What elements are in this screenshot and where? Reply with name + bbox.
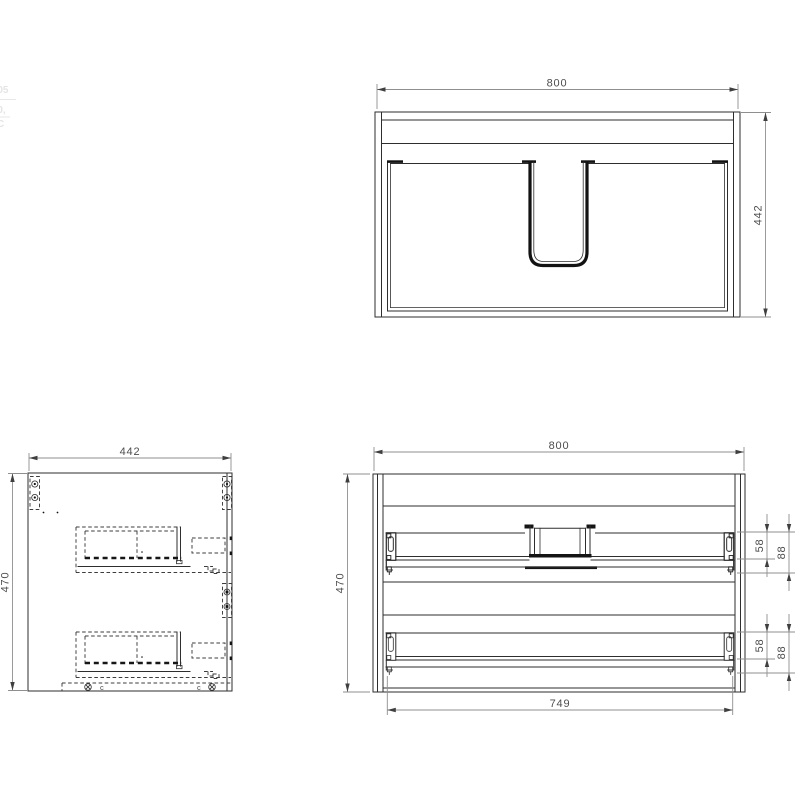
drawer1-offset-a-label: 58 <box>754 539 766 553</box>
edge-artifacts: -05 -0, C <box>0 85 16 130</box>
edge-artifact-text: C <box>0 119 4 130</box>
drawer2-offset-a-label: 58 <box>754 639 766 653</box>
front-view-carcass <box>373 474 745 692</box>
front-view-dim-height: 470 <box>335 474 371 692</box>
drawer2-hardware <box>386 633 734 675</box>
side-view-drawer-box <box>76 527 232 574</box>
basin-siphon-cutout <box>530 162 587 266</box>
hanger-bracket-top-left <box>30 477 40 510</box>
drill-mark <box>43 512 45 514</box>
top-view-width-label: 800 <box>547 78 568 90</box>
top-view-dim-width: 800 <box>377 78 738 110</box>
front-view-dim-runner: 749 <box>387 676 732 715</box>
side-view-marker-right: c <box>197 683 201 692</box>
runner-length-label: 749 <box>550 698 571 710</box>
side-view-drawer-box-lower <box>76 632 232 679</box>
top-view-drawer-box <box>387 161 728 311</box>
front-view-height-label: 470 <box>335 573 347 594</box>
side-view-dim-depth: 442 <box>29 446 231 471</box>
screw-cross-icon <box>85 684 92 691</box>
front-view-width-label: 800 <box>549 440 570 452</box>
side-view: 442 470 <box>0 446 232 692</box>
top-view-carcass <box>375 112 740 317</box>
front-view-dim-drawer2: 58 88 <box>737 614 795 691</box>
side-view-height-label: 470 <box>0 572 12 593</box>
side-view-marker-left: c <box>100 683 104 692</box>
drawer-runner-hidden <box>192 538 225 553</box>
drawer1-offset-b-label: 88 <box>776 546 788 560</box>
top-view-depth-label: 442 <box>753 205 765 226</box>
front-view-dim-width: 800 <box>374 440 744 471</box>
edge-artifact-text: -0, <box>0 105 6 116</box>
top-view: 800 442 <box>375 78 771 318</box>
side-view-carcass <box>28 473 232 691</box>
side-view-depth-label: 442 <box>120 446 141 458</box>
technical-drawing-canvas: -05 -0, C 800 442 <box>0 0 800 800</box>
siphon-notch <box>525 525 596 558</box>
drill-mark <box>57 512 59 514</box>
front-view-drawer1 <box>386 525 732 570</box>
edge-artifact-text: -05 <box>0 85 9 96</box>
front-view-drawer2 <box>386 633 732 660</box>
front-view-dim-drawer1: 58 88 <box>737 514 795 591</box>
drawer2-offset-b-label: 88 <box>776 646 788 660</box>
top-view-dim-depth: 442 <box>741 113 771 318</box>
side-view-dim-height: 470 <box>0 474 27 691</box>
screw-cross-icon <box>209 684 216 691</box>
front-view: 800 470 <box>335 440 796 715</box>
vanity-cabinet-drawing: -05 -0, C 800 442 <box>0 0 800 800</box>
